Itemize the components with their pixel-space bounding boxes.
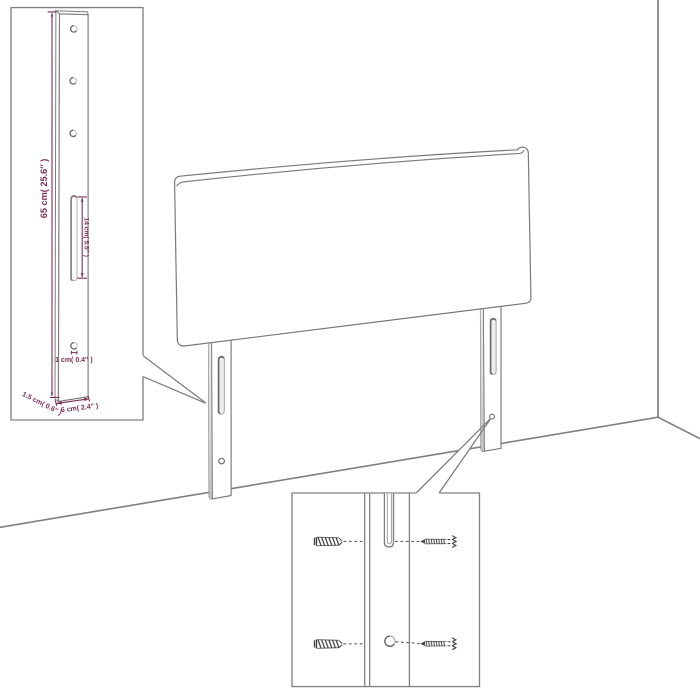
svg-text:1 cm( 0.4″ ): 1 cm( 0.4″ ) bbox=[55, 357, 93, 364]
svg-text:14 cm( 5.5″ ): 14 cm( 5.5″ ) bbox=[82, 217, 89, 257]
svg-text:65 cm( 25.6″ ): 65 cm( 25.6″ ) bbox=[39, 159, 49, 219]
